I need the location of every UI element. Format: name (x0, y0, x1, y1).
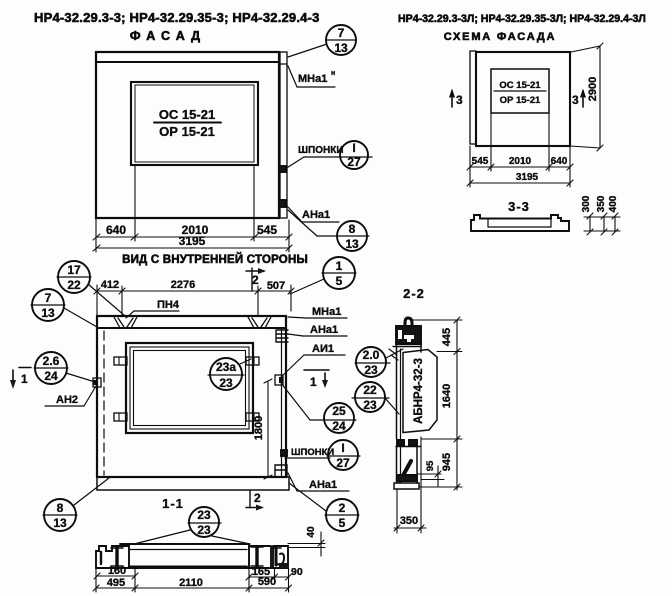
svg-text:95: 95 (425, 460, 436, 471)
svg-text:945: 945 (441, 453, 453, 471)
svg-text:13: 13 (334, 41, 348, 55)
svg-text:2: 2 (252, 273, 259, 287)
svg-text:545: 545 (257, 223, 277, 237)
svg-text:5: 5 (339, 516, 346, 530)
svg-text:2: 2 (254, 491, 261, 505)
svg-text:АНа1: АНа1 (309, 479, 337, 491)
svg-text:2900: 2900 (587, 77, 599, 101)
svg-text:1800: 1800 (253, 416, 265, 440)
svg-text:ВИД С ВНУТРЕННЕЙ СТОРОНЫ: ВИД С ВНУТРЕННЕЙ СТОРОНЫ (122, 253, 308, 266)
svg-text:23: 23 (364, 363, 378, 377)
svg-text:507: 507 (267, 280, 285, 292)
svg-text:1640: 1640 (441, 384, 453, 408)
svg-text:545: 545 (472, 156, 489, 167)
svg-text:СХЕМА ФАСАДА: СХЕМА ФАСАДА (444, 31, 557, 43)
svg-text:8: 8 (349, 222, 356, 236)
svg-text:МНа1: МНа1 (312, 306, 341, 318)
svg-text:350: 350 (400, 515, 418, 527)
svg-text:3195: 3195 (179, 234, 206, 248)
svg-text:640: 640 (106, 223, 126, 237)
svg-text:I: I (341, 441, 344, 455)
svg-text:1: 1 (336, 259, 343, 273)
svg-text:2010: 2010 (509, 156, 532, 167)
svg-text:13: 13 (41, 306, 55, 320)
svg-text:160: 160 (108, 565, 126, 577)
svg-text:ОС 15-21: ОС 15-21 (159, 107, 215, 122)
svg-text:17: 17 (67, 263, 81, 277)
svg-text:7: 7 (45, 291, 52, 305)
svg-text:400: 400 (608, 195, 619, 212)
svg-text:3: 3 (572, 93, 579, 107)
svg-text:2.0: 2.0 (363, 348, 380, 362)
svg-text:8: 8 (57, 501, 64, 515)
svg-text:23а: 23а (216, 360, 236, 374)
svg-text:40: 40 (306, 526, 317, 538)
svg-text:1-1: 1-1 (162, 496, 184, 511)
svg-text:НР4-32.29.3-3Л; НР4-32.29.35-3: НР4-32.29.3-3Л; НР4-32.29.35-3Л; НР4-32.… (398, 13, 646, 25)
svg-text:23: 23 (363, 398, 377, 412)
svg-text:25: 25 (332, 404, 346, 418)
svg-text:2.6: 2.6 (43, 354, 60, 368)
svg-text:ПН4: ПН4 (157, 299, 180, 311)
svg-text:ОР 15-21: ОР 15-21 (159, 124, 215, 139)
svg-text:90: 90 (291, 566, 303, 578)
svg-text:23: 23 (197, 523, 211, 537)
svg-text:27: 27 (336, 456, 350, 470)
svg-text:ШПОНКИ: ШПОНКИ (298, 145, 344, 156)
svg-text:27: 27 (347, 155, 361, 169)
svg-text:5: 5 (336, 274, 343, 288)
svg-text:22: 22 (363, 383, 377, 397)
svg-text:АН2: АН2 (56, 394, 78, 406)
svg-text:ФАСАД: ФАСАД (130, 29, 206, 43)
svg-text:24: 24 (44, 369, 58, 383)
svg-text:АНа1: АНа1 (310, 324, 338, 336)
svg-text:350: 350 (596, 195, 607, 212)
svg-text:ОС 15-21: ОС 15-21 (499, 80, 541, 91)
svg-text:300: 300 (581, 195, 592, 212)
svg-text:412: 412 (101, 279, 119, 291)
svg-text:590: 590 (258, 576, 276, 588)
svg-text:НР4-32.29.3-3; НР4-32.29.35-3;: НР4-32.29.3-3; НР4-32.29.35-3; НР4-32.29… (34, 10, 320, 25)
svg-text:2276: 2276 (171, 279, 195, 291)
svg-text:АИ1: АИ1 (312, 343, 334, 355)
svg-text:1: 1 (310, 375, 317, 389)
svg-text:3195: 3195 (516, 172, 539, 183)
svg-text:МНа1: МНа1 (298, 73, 327, 85)
svg-text:2: 2 (339, 501, 346, 515)
svg-text:2-2: 2-2 (403, 286, 425, 301)
svg-text:I: I (352, 141, 355, 155)
svg-text:22: 22 (67, 278, 81, 292)
svg-text:3: 3 (456, 93, 463, 107)
svg-text:АБНР4-32-3: АБНР4-32-3 (413, 358, 425, 424)
svg-text:445: 445 (441, 328, 453, 346)
svg-text:3-3: 3-3 (508, 199, 530, 214)
svg-text:н: н (331, 70, 335, 77)
svg-text:495: 495 (107, 577, 125, 589)
svg-text:1: 1 (21, 372, 28, 386)
svg-text:640: 640 (551, 156, 568, 167)
svg-text:ОР 15-21: ОР 15-21 (500, 95, 541, 106)
svg-text:24: 24 (332, 419, 346, 433)
svg-text:7: 7 (338, 26, 345, 40)
svg-text:13: 13 (345, 237, 359, 251)
svg-text:2110: 2110 (179, 577, 203, 589)
svg-text:23: 23 (197, 508, 211, 522)
svg-text:АНа1: АНа1 (302, 209, 330, 221)
svg-text:23: 23 (219, 376, 233, 390)
svg-text:13: 13 (53, 516, 67, 530)
